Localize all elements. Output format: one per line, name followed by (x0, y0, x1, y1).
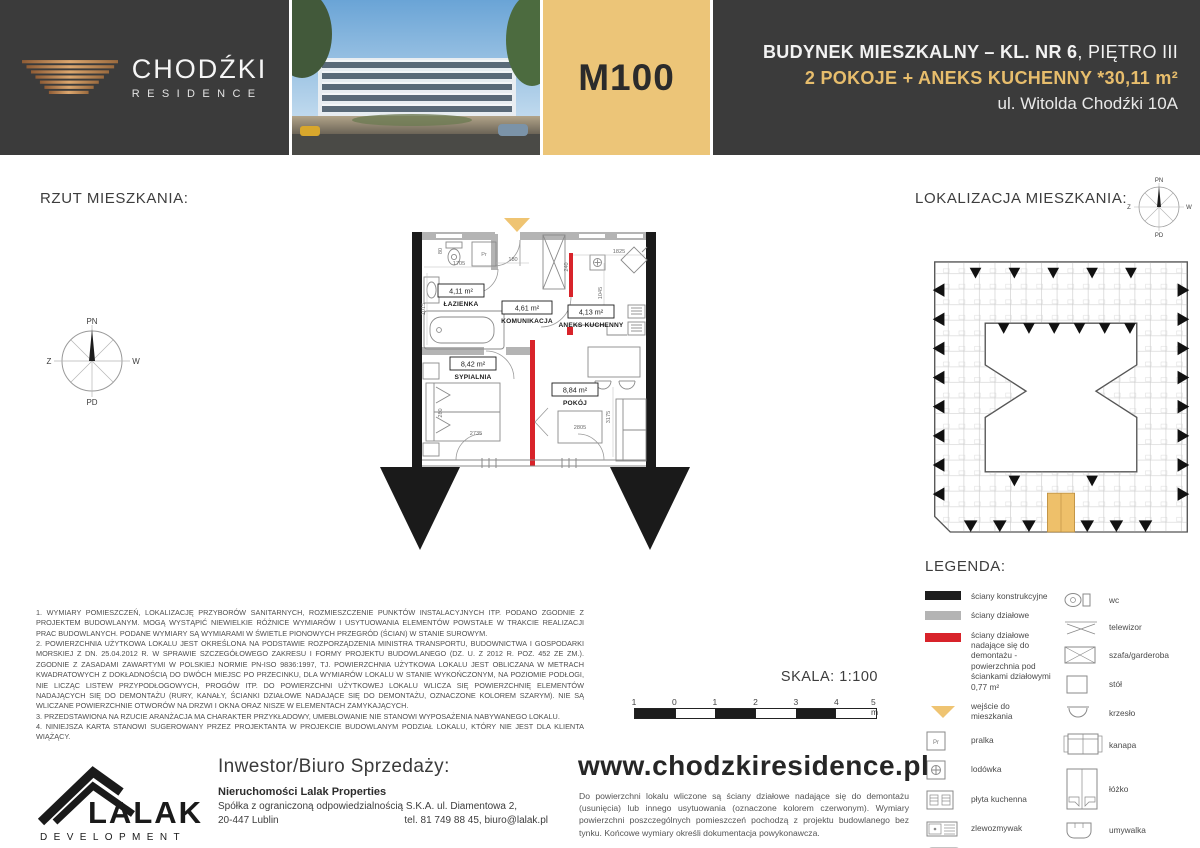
legend-item-washbasin: umywalka (1063, 820, 1197, 840)
loc-compass-north: PN (1155, 178, 1163, 184)
sofa-legend-icon (1063, 732, 1109, 758)
table-icon (588, 347, 640, 377)
sink-legend-icon (925, 820, 971, 838)
dim-desk: 2805 (574, 425, 586, 431)
hob-icon (628, 305, 645, 318)
room-area-living: 8,84 m² (563, 386, 588, 395)
wall-removable-center (530, 340, 535, 466)
scale-label: SKALA: 1:100 (690, 669, 878, 685)
wall-structural-icon (925, 591, 971, 601)
loc-compass-south: PD (1155, 233, 1164, 238)
dim-room-h: 3175 (606, 411, 612, 423)
washer-label: Pr (481, 252, 487, 258)
svg-text:Pr: Pr (933, 740, 939, 746)
compass-rose: PN PD Z W (44, 316, 140, 406)
washer-legend-icon: Pr (925, 731, 971, 751)
dim-bath-w: 1705 (453, 261, 465, 267)
dim-bed-w: 2735 (470, 431, 482, 437)
legend-item-sink: zlewozmywak (925, 820, 1065, 838)
building-line-bold: BUDYNEK MIESZKALNY – KL. NR 6 (763, 42, 1077, 62)
nightstand-icon (423, 363, 439, 379)
building-line-rest: , PIĘTRO III (1077, 42, 1178, 62)
legend-item-tv: telewizor (1063, 618, 1197, 636)
investor-title: Inwestor/Biuro Sprzedaży: (218, 756, 450, 778)
toilet-icon (446, 242, 462, 248)
scale-tick: 3 (793, 697, 798, 707)
dim-wardrobe: 240 (564, 262, 570, 271)
chair-legend-icon (1063, 703, 1109, 723)
balcony-right-triangle (610, 467, 690, 550)
wall-partition-icon (925, 611, 971, 621)
dim-kitchen-w: 1825 (613, 249, 625, 255)
company-name: Nieruchomości Lalak Properties (218, 786, 386, 798)
legend-item-fridge: lodówka (925, 760, 1065, 780)
legend-item-entrance: wejście do mieszkania (925, 701, 1065, 722)
lalak-logo-subtext: DEVELOPMENT (40, 832, 186, 842)
room-area-bedroom: 8,42 m² (461, 360, 486, 369)
brand-subname: RESIDENCE (132, 89, 268, 100)
note-3: 3. PRZEDSTAWIONA NA RZUCIE ARANŻACJA MA … (36, 712, 584, 722)
scale-tick: 4 (834, 697, 839, 707)
legend-title: LEGENDA: (925, 558, 1006, 575)
location-title: LOKALIZACJA MIESZKANIA: (915, 190, 1127, 207)
wall-structural-left (412, 232, 422, 467)
legend-item-hob: płyta kuchenna (925, 789, 1065, 811)
scale-bar: 1 0 1 2 3 4 5 m (634, 697, 877, 721)
wardrobe-legend-icon (1063, 645, 1109, 665)
compass-east-label: W (132, 357, 140, 366)
legend-item-washer: Pr pralka (925, 731, 1065, 751)
unit-number-block: M100 (543, 0, 710, 155)
legend-item-table: stół (1063, 674, 1197, 694)
entrance-icon (925, 703, 971, 719)
wall-hall-stub (506, 347, 530, 355)
plan-title: RZUT MIESZKANIA: (40, 190, 189, 207)
living-furniture (558, 399, 646, 461)
dim-entry: 180 (508, 257, 517, 263)
website-url: www.chodzkiresidence.pl (578, 750, 929, 782)
scale-tick: 1 (632, 697, 637, 707)
scale-tick: 1 (713, 697, 718, 707)
header-info-block: BUDYNEK MIESZKALNY – KL. NR 6, PIĘTRO II… (713, 0, 1200, 155)
balcony-left-triangle (380, 467, 460, 550)
brand-name: CHODŹKI (132, 56, 268, 83)
website-note: Do powierzchni lokalu wliczone są ściany… (579, 790, 909, 839)
room-name-kitchen: ANEKS KUCHENNY (558, 322, 623, 329)
room-area-hall: 4,61 m² (515, 304, 540, 313)
bed-legend-icon (1063, 767, 1109, 811)
wc-legend-icon (1063, 591, 1109, 609)
hob-legend-icon (925, 789, 971, 811)
dim-bath-h: 1015 (421, 303, 427, 315)
compass-north-label: PN (86, 317, 97, 326)
note-2: 2. POWIERZCHNIA UŻYTKOWA LOKALU JEST OKR… (36, 639, 584, 712)
location-compass-rose: PN PD Z W (1126, 176, 1192, 238)
chodzki-logo-icon (22, 49, 118, 107)
note-4: 4. NINIEJSZA KARTA STANOWI SUGEROWANY PR… (36, 722, 584, 743)
legend-item-bed: łóżko (1063, 767, 1197, 811)
table-legend-icon (1063, 674, 1109, 694)
legend-item-removable: ściany działowe nadające się do demontaż… (925, 630, 1065, 692)
building-line: BUDYNEK MIESZKALNY – KL. NR 6, PIĘTRO II… (763, 42, 1178, 63)
wall-bathroom-right (491, 234, 498, 270)
apartment-card: CHODŹKI RESIDENCE (0, 0, 1200, 848)
building-location-plan (925, 248, 1197, 544)
wall-partition-top (422, 232, 646, 240)
room-name-hall: KOMUNIKACJA (501, 318, 553, 325)
disclaimer-notes: 1. WYMIARY POMIESZCZEŃ, LOKALIZACJĘ PRZY… (36, 608, 584, 743)
tv-legend-icon (1063, 618, 1109, 636)
unit-number: M100 (578, 57, 675, 99)
entrance-arrow-icon (504, 218, 530, 232)
wall-structural-right (646, 232, 656, 467)
building-photo (292, 0, 540, 155)
scale-tick: 5 m (871, 697, 878, 717)
chair-icon2 (619, 381, 635, 389)
wall-bathroom-bottom (422, 347, 484, 355)
room-name-living: POKÓJ (563, 398, 587, 407)
legend-item-chair: krzesło (1063, 703, 1197, 723)
scale-bar-segments (634, 708, 877, 719)
legend-item-partition: ściany działowe (925, 610, 1065, 620)
wall-removable-icon (925, 630, 971, 643)
legend-item-wardrobe: szafa/garderoba (1063, 645, 1197, 665)
compass-west-label: Z (47, 357, 52, 366)
dim-kitchen-h: 1045 (598, 287, 604, 299)
address-line: ul. Witolda Chodźki 10A (998, 94, 1178, 114)
loc-compass-west: Z (1127, 205, 1131, 211)
note-1: 1. WYMIARY POMIESZCZEŃ, LOKALIZACJĘ PRZY… (36, 608, 584, 639)
legend-item-structural: ściany konstrukcyjne (925, 591, 1065, 601)
compass-south-label: PD (86, 398, 97, 406)
washbasin-legend-icon (1063, 820, 1109, 840)
fridge-legend-icon (925, 760, 971, 780)
legend-item-sofa: kanapa (1063, 732, 1197, 758)
lalak-development-logo: LALAK DEVELOPMENT (38, 760, 210, 842)
room-name-bathroom: ŁAZIENKA (444, 301, 479, 308)
kitchen-fixtures (543, 235, 647, 335)
scale-tick: 0 (672, 697, 677, 707)
room-area-bathroom: 4,11 m² (449, 287, 473, 296)
room-name-bedroom: SYPIALNIA (455, 374, 492, 381)
legend-item-wc: wc (1063, 591, 1197, 609)
room-area-kitchen: 4,13 m² (579, 308, 604, 317)
company-address1: Spółka z ograniczoną odpowiedzialnością … (218, 801, 517, 812)
brand-block: CHODŹKI RESIDENCE (0, 0, 289, 155)
lalak-logo-text: LALAK (88, 795, 203, 830)
dim-wc: 80 (438, 248, 444, 254)
company-contact: tel. 81 749 88 45, biuro@lalak.pl (404, 815, 548, 826)
dim-bed-h: 280 (438, 408, 444, 417)
company-address2: 20-447 Lublin (218, 815, 279, 826)
unit-type-line: 2 POKOJE + ANEKS KUCHENNY *30,11 m² (805, 68, 1178, 89)
floor-plan: Pr (376, 205, 700, 555)
basin-icon (424, 277, 439, 303)
wall-removable-kitchen (569, 253, 573, 297)
loc-compass-east: W (1186, 205, 1192, 211)
scale-tick: 2 (753, 697, 758, 707)
